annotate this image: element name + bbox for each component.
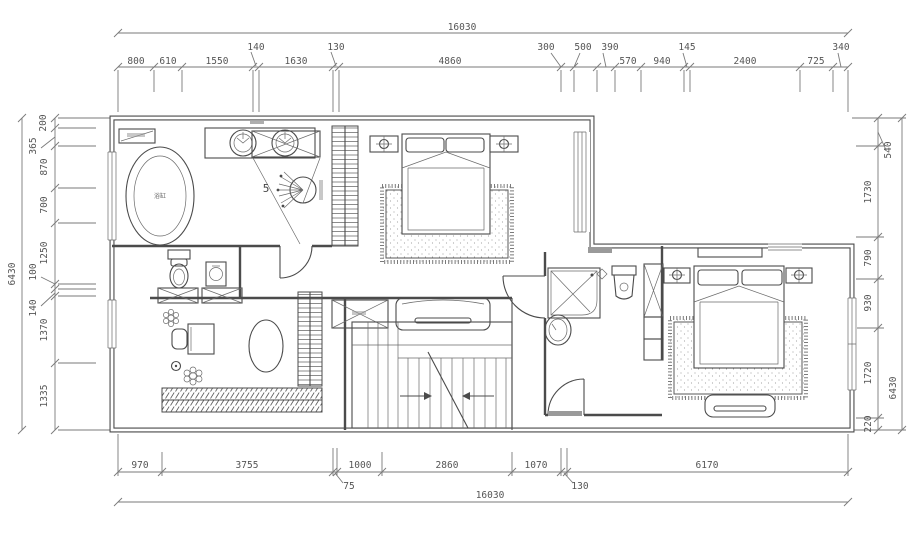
window	[847, 298, 857, 390]
dim-label: 100	[28, 263, 39, 280]
desk	[172, 324, 214, 354]
bathroom-1: 浴缸 5	[119, 121, 358, 278]
wash-basin	[545, 315, 571, 345]
dim-label: 3755	[236, 460, 259, 471]
dim-label: 1370	[39, 318, 50, 341]
dim-label: 970	[131, 460, 148, 471]
dim-label: 1730	[863, 180, 874, 203]
bathtub: 浴缸	[126, 147, 194, 245]
nightstand	[786, 268, 812, 283]
dim-label: 500	[574, 42, 591, 53]
dim-label: 4860	[439, 56, 462, 67]
nightstand	[490, 136, 518, 152]
dim-label: 130	[571, 481, 588, 492]
label-box	[119, 129, 155, 143]
dim-label: 16030	[448, 22, 477, 33]
dim-label: 725	[807, 56, 824, 67]
dim-label: 930	[863, 294, 874, 311]
window	[768, 243, 802, 251]
shower-head-symbol: 5	[263, 172, 323, 208]
bed	[694, 266, 784, 368]
shower-number: 5	[263, 182, 270, 195]
dim-label: 540	[883, 141, 894, 158]
bathtub-label: 浴缸	[154, 192, 166, 200]
tv-cabinet	[705, 395, 775, 417]
dim-label: 1630	[285, 56, 308, 67]
dim-label: 365	[28, 137, 39, 154]
top-dimensions: 16030 800 610 1550 140 1630 130 4860 300…	[114, 22, 852, 112]
dim-label: 700	[39, 196, 50, 213]
staircase	[352, 322, 512, 428]
dim-label: 220	[863, 415, 874, 432]
dim-label: 1720	[863, 361, 874, 384]
dim-label: 6430	[7, 262, 18, 285]
nightstand	[370, 136, 398, 152]
mop-sink	[206, 262, 226, 286]
dim-label: 16030	[476, 490, 505, 501]
dim-label: 790	[863, 249, 874, 266]
floor-plan-page: 16030 800 610 1550 140 1630 130 4860 300…	[0, 0, 920, 560]
dim-label: 1335	[39, 385, 50, 408]
wall-niche	[698, 248, 762, 257]
dim-label: 200	[38, 114, 49, 131]
dim-label: 300	[537, 42, 554, 53]
dim-label: 610	[159, 56, 176, 67]
stool	[172, 362, 181, 371]
window	[107, 152, 117, 240]
crossed-cabinet	[332, 300, 388, 328]
dim-label: 75	[343, 481, 354, 492]
toilet	[612, 266, 636, 299]
plant	[184, 367, 202, 385]
stair-arrow	[462, 392, 494, 400]
right-dimensions: 540 1730 790 930 1720 220 6430	[852, 114, 906, 434]
dim-label: 570	[619, 56, 636, 67]
door-arc	[280, 246, 312, 278]
dim-label: 2400	[734, 56, 757, 67]
dim-label: 390	[601, 42, 618, 53]
plant	[163, 309, 178, 326]
dim-label: 870	[39, 158, 50, 175]
dim-label: 800	[127, 56, 144, 67]
door-arc	[548, 379, 584, 416]
bathroom-2	[545, 264, 663, 416]
bench-cabinet	[396, 298, 490, 330]
dim-label: 140	[247, 42, 264, 53]
bedroom-1	[370, 132, 590, 262]
stair-break-line	[428, 352, 468, 428]
dim-label: 145	[678, 42, 695, 53]
bookshelf-hatch	[162, 388, 322, 412]
toilet	[168, 250, 190, 288]
bedroom-2	[664, 248, 812, 417]
stair-arrow	[400, 392, 432, 400]
dim-label: 940	[653, 56, 670, 67]
left-dimensions: 200 365 870 700 1250 100 140 1370 1335 6…	[7, 114, 112, 434]
dim-label: 1070	[525, 460, 548, 471]
wardrobe-column	[644, 264, 663, 360]
shower-stall	[548, 268, 600, 318]
nightstand	[664, 268, 690, 283]
study	[162, 292, 322, 412]
bed	[402, 134, 490, 234]
dim-label: 6170	[696, 460, 719, 471]
dim-label: 1000	[349, 460, 372, 471]
dim-label: 1550	[206, 56, 229, 67]
crossed-cabinet	[158, 288, 242, 303]
crossed-cabinet	[252, 131, 320, 157]
bottom-dimensions: 970 3755 75 1000 2860 1070 130 6170 1603…	[114, 434, 852, 506]
floor-drain-icon	[597, 269, 607, 279]
side-table	[249, 320, 283, 372]
dim-label: 340	[832, 42, 849, 53]
bookshelf-hatch	[298, 292, 322, 386]
dim-label: 1250	[39, 241, 50, 264]
window	[107, 300, 117, 348]
dim-label: 2860	[436, 460, 459, 471]
wardrobe-hatch	[332, 126, 358, 246]
wc-nook	[158, 250, 242, 303]
window	[572, 132, 590, 232]
door-threshold	[588, 247, 612, 253]
dim-label: 130	[327, 42, 344, 53]
dim-label: 140	[28, 299, 39, 316]
floor-plan-canvas: 16030 800 610 1550 140 1630 130 4860 300…	[0, 0, 920, 560]
dim-label: 6430	[888, 376, 899, 399]
